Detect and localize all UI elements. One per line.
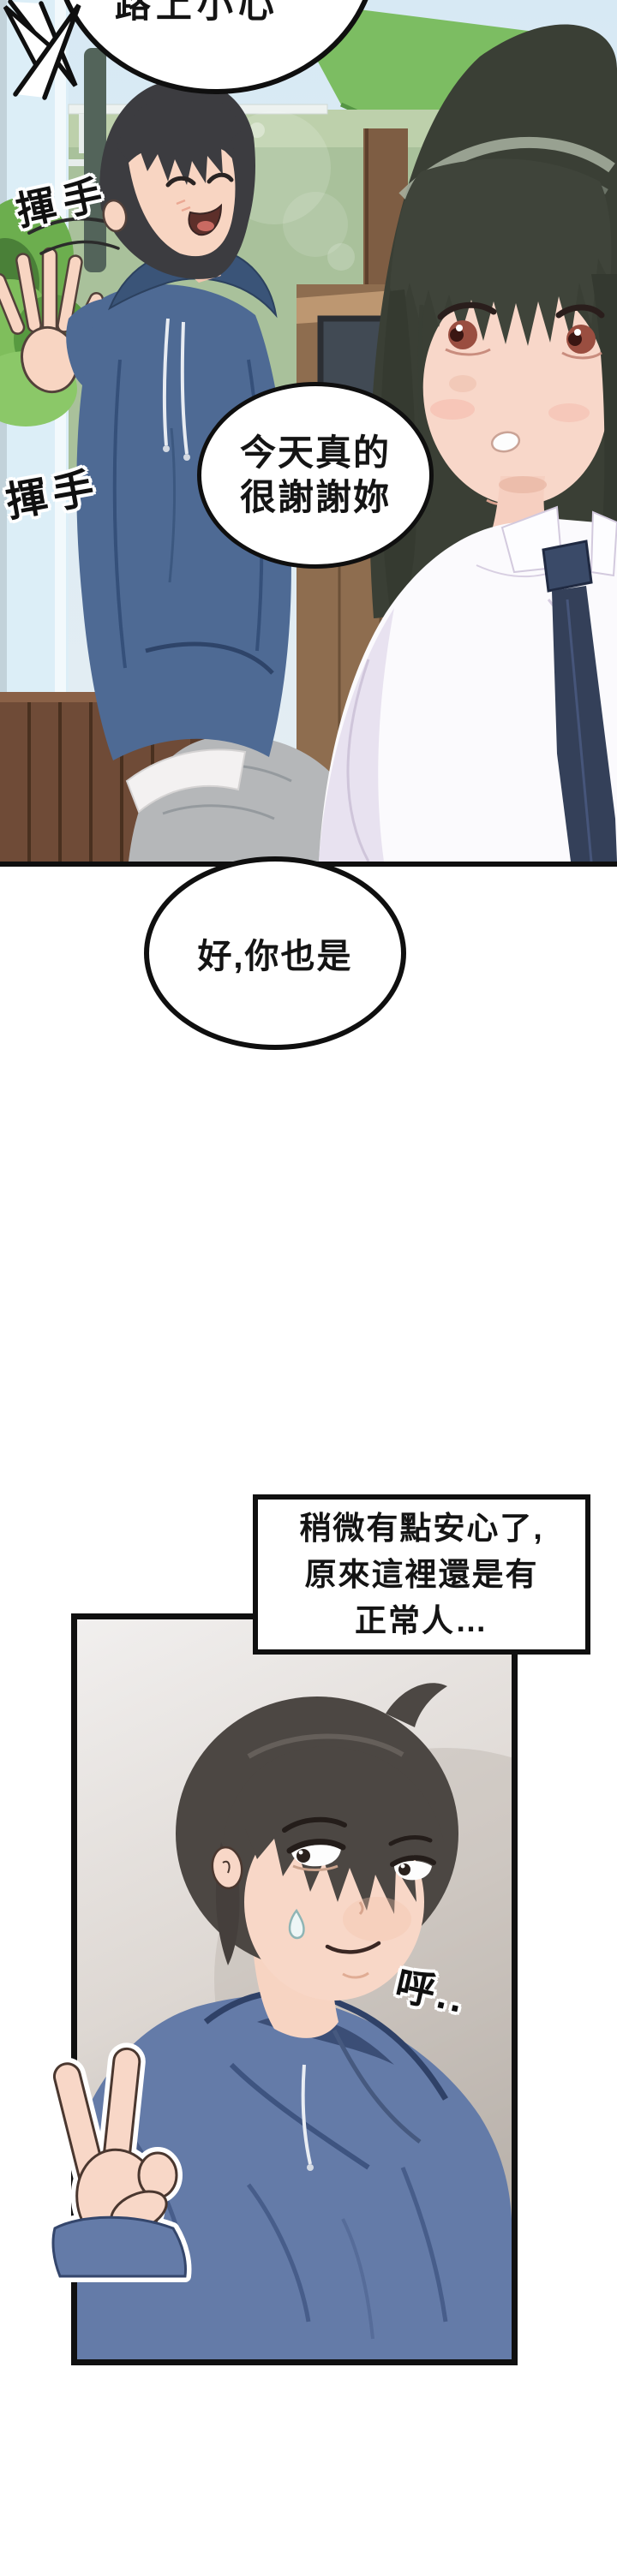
speech-bubble-thanks: 今天真的 很謝謝妳 xyxy=(197,382,434,569)
cheek-shadow xyxy=(449,375,476,392)
thought-line-2: 原來這裡還是有 xyxy=(305,1552,539,1598)
panel-top: 路上小心 今天真的 很謝謝妳 好,你也是 揮手 揮手 xyxy=(0,0,617,867)
bubble-thanks-line-1: 今天真的 xyxy=(240,431,391,475)
thought-line-1: 稍微有點安心了, xyxy=(299,1506,543,1552)
collar xyxy=(591,512,617,575)
speech-bubble-reply: 好,你也是 xyxy=(144,856,406,1050)
sleeve-cuff xyxy=(53,2217,185,2276)
blush xyxy=(548,403,590,422)
bubble-tail-up-right xyxy=(0,0,86,101)
bubble-thanks-line-2: 很謝謝妳 xyxy=(240,475,391,520)
bubble-offscreen-text: 路上小心 xyxy=(115,0,279,28)
bubble-reply-text: 好,你也是 xyxy=(197,928,352,978)
thought-line-3: 正常人… xyxy=(355,1598,488,1644)
blush xyxy=(430,399,475,420)
thought-box: 稍微有點安心了, 原來這裡還是有 正常人… xyxy=(253,1494,590,1655)
comic-page: 路上小心 今天真的 很謝謝妳 好,你也是 揮手 揮手 稍微有點安心了, 原來這裡… xyxy=(0,0,617,2576)
hand-popout xyxy=(29,2012,201,2278)
